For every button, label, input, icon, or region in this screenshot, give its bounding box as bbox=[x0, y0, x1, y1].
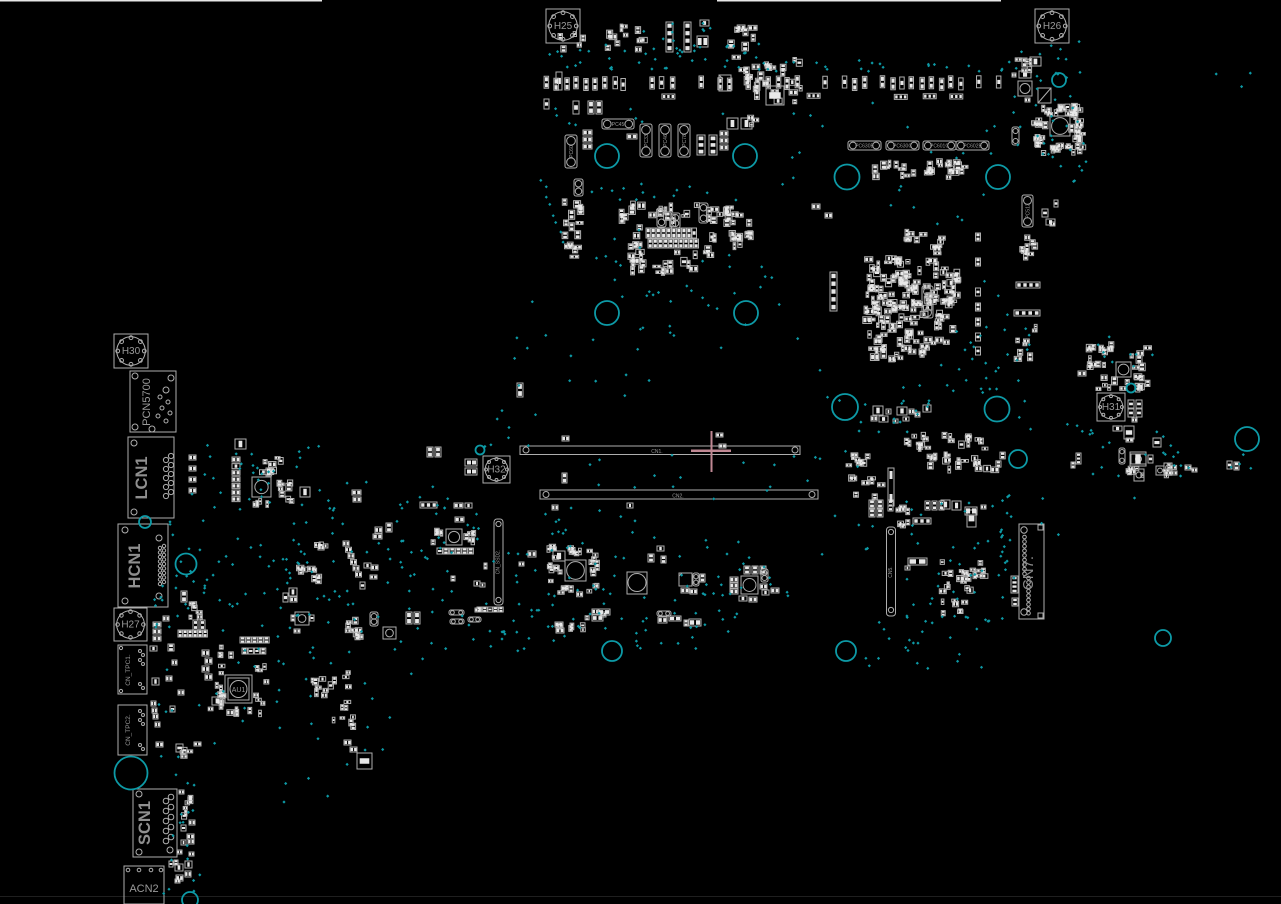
svg-text:PC78: PC78 bbox=[682, 134, 688, 147]
svg-text:CN_TPC1.: CN_TPC1. bbox=[125, 654, 132, 686]
svg-text:H26: H26 bbox=[1043, 21, 1062, 32]
svg-text:AU1: AU1 bbox=[232, 687, 246, 694]
svg-text:PC46: PC46 bbox=[663, 134, 669, 147]
svg-text:PC50A: PC50A bbox=[926, 293, 932, 310]
svg-text:PC513: PC513 bbox=[1026, 203, 1032, 219]
svg-text:CN5.: CN5. bbox=[888, 566, 894, 577]
svg-text:PCN5700: PCN5700 bbox=[141, 378, 153, 426]
svg-text:HCN1: HCN1 bbox=[126, 544, 144, 589]
svg-text:LCN1: LCN1 bbox=[133, 456, 151, 499]
svg-text:H31: H31 bbox=[1102, 402, 1121, 413]
svg-text:H32: H32 bbox=[487, 465, 506, 476]
svg-text:PC602E: PC602E bbox=[963, 143, 982, 149]
svg-text:H25: H25 bbox=[554, 21, 573, 32]
svg-text:CN_SSD2.: CN_SSD2. bbox=[496, 550, 502, 574]
svg-text:CN7.: CN7. bbox=[1020, 556, 1037, 590]
svg-text:CN2.: CN2. bbox=[672, 494, 683, 500]
svg-text:PC630C: PC630C bbox=[893, 143, 912, 149]
svg-text:H27: H27 bbox=[121, 620, 140, 631]
svg-text:CN1.: CN1. bbox=[651, 449, 662, 455]
svg-text:PC630E: PC630E bbox=[855, 143, 874, 149]
svg-text:SCN1: SCN1 bbox=[136, 801, 154, 845]
svg-text:PC60: PC60 bbox=[569, 145, 575, 158]
svg-text:CN_TPC2.: CN_TPC2. bbox=[125, 714, 132, 746]
svg-text:PC601C: PC601C bbox=[930, 143, 949, 149]
svg-text:PC33: PC33 bbox=[644, 134, 650, 147]
svg-text:PC45: PC45 bbox=[612, 122, 625, 128]
svg-text:H30: H30 bbox=[122, 346, 141, 357]
svg-text:ACN2: ACN2 bbox=[129, 883, 158, 895]
